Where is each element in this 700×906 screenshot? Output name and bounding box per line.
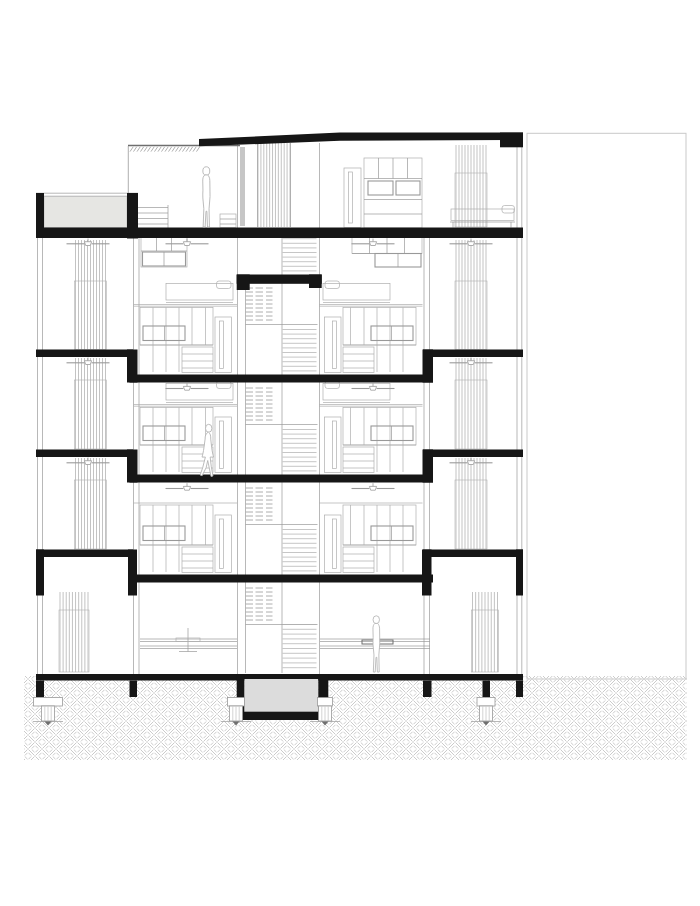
person-body: [373, 623, 380, 672]
stair-flight-treads: [283, 430, 317, 471]
stair-flight-dashed: [246, 288, 273, 320]
wardrobe-door-panel: [349, 172, 353, 223]
cabinet-front: [368, 181, 393, 195]
hatch-tick: [190, 147, 193, 152]
fan-hub: [84, 242, 91, 246]
floor-slab-right: [423, 450, 523, 458]
furniture-outline: [220, 321, 224, 369]
apartment-interior-left: [134, 381, 238, 473]
hatch-tick: [183, 147, 186, 152]
ceiling-fan-icon: [166, 383, 209, 390]
adjacent-volume-outline: [527, 133, 686, 679]
foundation-stub: [36, 681, 44, 698]
stairs: [246, 230, 317, 668]
apartment-interior-right: [319, 381, 423, 473]
person-head: [203, 167, 210, 175]
person-ground-floor: [373, 616, 380, 672]
furniture-outline: [166, 384, 233, 401]
foundation-stub: [516, 681, 523, 698]
hatch-tick: [148, 147, 151, 152]
fan-hub: [84, 461, 91, 465]
furniture-outline: [140, 505, 213, 545]
hatch-tick: [165, 147, 168, 152]
hatch-tick: [137, 147, 140, 152]
bed: [451, 209, 514, 221]
hatch-tick: [130, 147, 133, 152]
cabinet-front: [396, 181, 420, 195]
apartment-interior-left: [134, 281, 238, 373]
apartment-interior-left: [134, 503, 238, 573]
furniture-outline: [343, 347, 374, 373]
apartment-interior-right: [319, 503, 423, 573]
furniture-outline: [333, 421, 337, 469]
floor-slab: [36, 228, 523, 239]
hatch-tick: [176, 147, 179, 152]
ceiling-fan-icon: [352, 383, 395, 390]
furniture-outline: [325, 281, 340, 289]
pit-base-slab: [237, 712, 329, 720]
floor-slab-right: [423, 350, 523, 358]
hatch-tick: [179, 147, 182, 152]
person-walking-mid-level: [200, 424, 213, 476]
building-section-drawing: [0, 0, 700, 906]
floor-slab-left: [36, 350, 133, 358]
hatch-tick: [169, 147, 172, 152]
louver-screen: [455, 358, 487, 449]
hatch-tick: [193, 147, 196, 152]
structure-lines: [36, 143, 522, 674]
louver-screen: [455, 145, 487, 227]
fan-hub: [467, 461, 474, 465]
parapet-wall: [127, 193, 138, 239]
furniture-outline: [182, 347, 213, 373]
ground-column: [36, 550, 44, 596]
ceiling-fan-icon: [352, 483, 395, 490]
ground-column: [422, 550, 432, 596]
stair-core-screen: [258, 143, 290, 227]
pile-cap: [228, 698, 245, 707]
fan-hub: [369, 386, 376, 390]
furniture-outline: [182, 547, 213, 573]
roof-edge-block: [500, 133, 523, 148]
ceiling-fan-icon: [166, 483, 209, 490]
louver-screen: [75, 358, 107, 449]
louver-frame: [59, 610, 89, 672]
fan-hub: [183, 386, 190, 390]
furniture-outline: [333, 519, 337, 569]
hatch-tick: [162, 147, 165, 152]
stair-flight-dashed: [246, 388, 273, 420]
hatch-tick: [151, 147, 154, 152]
hatch-tick: [141, 147, 144, 152]
louver-screen: [75, 458, 107, 549]
stair-flight-dashed: [246, 588, 273, 620]
roof-slab: [199, 133, 523, 147]
hatch-tick: [158, 147, 161, 152]
furniture-outline: [220, 519, 224, 569]
pile-cap: [34, 698, 63, 707]
fan-hub: [183, 242, 190, 246]
pile-cap: [318, 698, 333, 707]
hatch-tick: [144, 147, 147, 152]
ceiling-fan-icon: [67, 239, 110, 246]
floor-slab-center: [130, 375, 434, 383]
terrace-stool: [220, 214, 236, 228]
furniture-outline: [220, 421, 224, 469]
stair-landing-end: [237, 275, 250, 291]
furniture-outline: [343, 447, 374, 473]
foundation-stub: [483, 681, 491, 698]
furniture-outline: [343, 505, 416, 545]
furniture-outline: [217, 281, 232, 289]
pile-cap: [477, 698, 495, 707]
louver-screen: [75, 240, 107, 350]
hatch-tick: [134, 147, 137, 152]
hatch-tick: [155, 147, 158, 152]
louver-screen: [455, 458, 487, 549]
core-wall-gray: [240, 147, 245, 226]
canopy-hatch-ticks: [130, 147, 200, 152]
fan-hub: [467, 242, 474, 246]
person-on-roof-terrace: [203, 167, 210, 227]
stair-flight-treads: [283, 625, 317, 668]
fan-hub: [369, 242, 376, 246]
ceiling-fan-icon: [67, 458, 110, 465]
ceiling-fan-icon: [352, 239, 395, 246]
stair-flight-treads: [283, 530, 317, 571]
people: [200, 167, 380, 672]
fan-hub: [369, 486, 376, 490]
stair-flight-treads: [283, 330, 317, 371]
floor-slab-center: [130, 475, 434, 483]
louver-screen: [59, 592, 89, 672]
floor-slab-center: [130, 575, 434, 583]
floor-slab-right: [423, 550, 523, 558]
fan-hub: [84, 361, 91, 365]
stair-flight-dashed: [246, 488, 273, 520]
ground-hatch: [24, 676, 687, 760]
person-head: [205, 424, 211, 432]
furniture-outline: [333, 321, 337, 369]
fan-hub: [183, 486, 190, 490]
ground-column: [128, 550, 137, 596]
hatch-tick: [172, 147, 175, 152]
pit-fill: [244, 679, 318, 712]
floor-slab-left: [36, 450, 133, 458]
architectural-section-sheet: [0, 0, 700, 906]
furniture-outline: [343, 547, 374, 573]
person-head: [373, 616, 379, 624]
roof-planter-soil: [44, 197, 127, 228]
foundation-stub: [130, 681, 138, 698]
person-body: [203, 175, 210, 227]
furniture-outline: [323, 284, 390, 301]
ceiling-fan-icon: [166, 239, 209, 246]
parapet-wall: [36, 193, 44, 228]
hatch-tick: [197, 147, 200, 152]
ground-column: [516, 550, 523, 596]
stair-landing-end: [309, 275, 322, 289]
fan-hub: [467, 361, 474, 365]
floor-slab-left: [36, 550, 133, 558]
louver-screen: [472, 592, 499, 672]
foundation-stub: [423, 681, 432, 698]
page: { "meta": {"canvas_w": 700, "canvas_h": …: [0, 0, 700, 906]
hatch-tick: [186, 147, 189, 152]
ceiling-fan-icon: [67, 358, 110, 365]
furniture-outline: [166, 284, 233, 301]
furniture-outline: [323, 384, 390, 401]
louver-screen: [455, 240, 487, 350]
apartment-interior-right: [319, 281, 423, 373]
